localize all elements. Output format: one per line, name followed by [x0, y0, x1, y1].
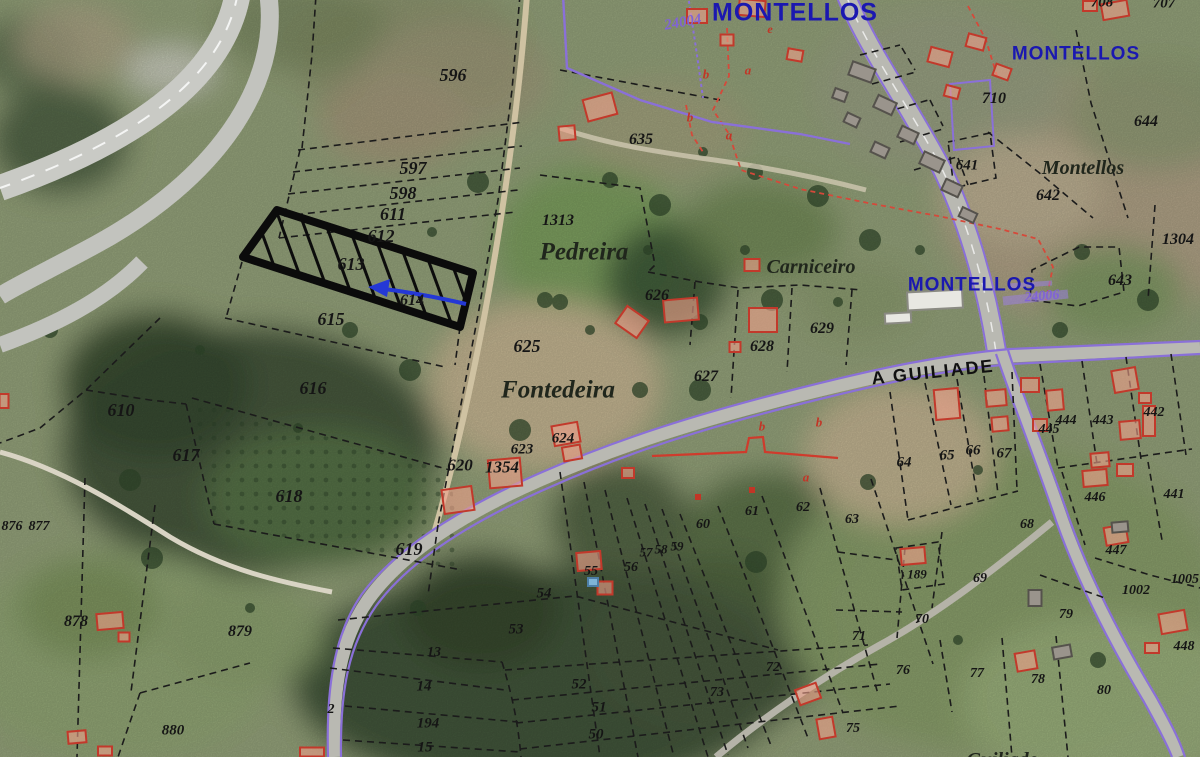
building-footprint [900, 547, 925, 565]
building-footprint [119, 633, 130, 642]
building-footprint [816, 717, 835, 739]
building-footprint [1015, 650, 1038, 671]
building-footprint [1046, 389, 1064, 410]
building-footprint [749, 308, 777, 332]
building-footprint [1143, 406, 1155, 436]
building-footprint [730, 342, 741, 352]
building-footprint [98, 747, 112, 756]
building-footprint [787, 48, 804, 61]
building-footprint [1033, 419, 1047, 431]
building-roof-gray [1052, 645, 1072, 660]
building-roof-white [907, 290, 963, 311]
building-footprint [1021, 378, 1039, 392]
building-roof-white [885, 312, 911, 323]
building-footprint [934, 388, 961, 420]
aerial-basemap [0, 0, 1200, 757]
building-footprint [721, 35, 734, 46]
building-footprint [738, 0, 765, 17]
building-footprint [1117, 464, 1133, 476]
building-footprint [1111, 367, 1138, 393]
building-footprint [558, 125, 575, 140]
building-footprint [300, 748, 324, 757]
building-footprint [745, 259, 760, 271]
building-footprint [551, 422, 580, 446]
building-footprint [1090, 452, 1109, 468]
building-footprint [944, 85, 960, 99]
cadastral-map-viewport[interactable]: MONTELLOSMONTELLOSMONTELLOSPedreiraFonte… [0, 0, 1200, 757]
building-footprint [1082, 469, 1107, 487]
building-footprint [687, 9, 707, 23]
building-footprint [488, 458, 522, 489]
building-footprint [576, 551, 601, 571]
building-roof-gray [1029, 590, 1042, 606]
building-footprint [1119, 420, 1140, 440]
building-footprint [1145, 643, 1159, 653]
swimming-pool [588, 578, 598, 586]
building-footprint [1083, 1, 1097, 11]
building-footprint [441, 486, 474, 514]
building-footprint [562, 445, 582, 462]
building-footprint [96, 612, 123, 630]
building-footprint [991, 416, 1008, 431]
building-footprint [663, 298, 699, 323]
building-footprint [1101, 0, 1129, 20]
building-footprint [598, 582, 613, 595]
building-footprint [1139, 393, 1151, 403]
building-footprint [68, 730, 87, 744]
building-footprint [985, 389, 1006, 407]
building-footprint [622, 468, 634, 478]
building-footprint [1158, 610, 1187, 634]
building-footprint [0, 394, 9, 408]
building-roof-gray [1112, 521, 1129, 532]
